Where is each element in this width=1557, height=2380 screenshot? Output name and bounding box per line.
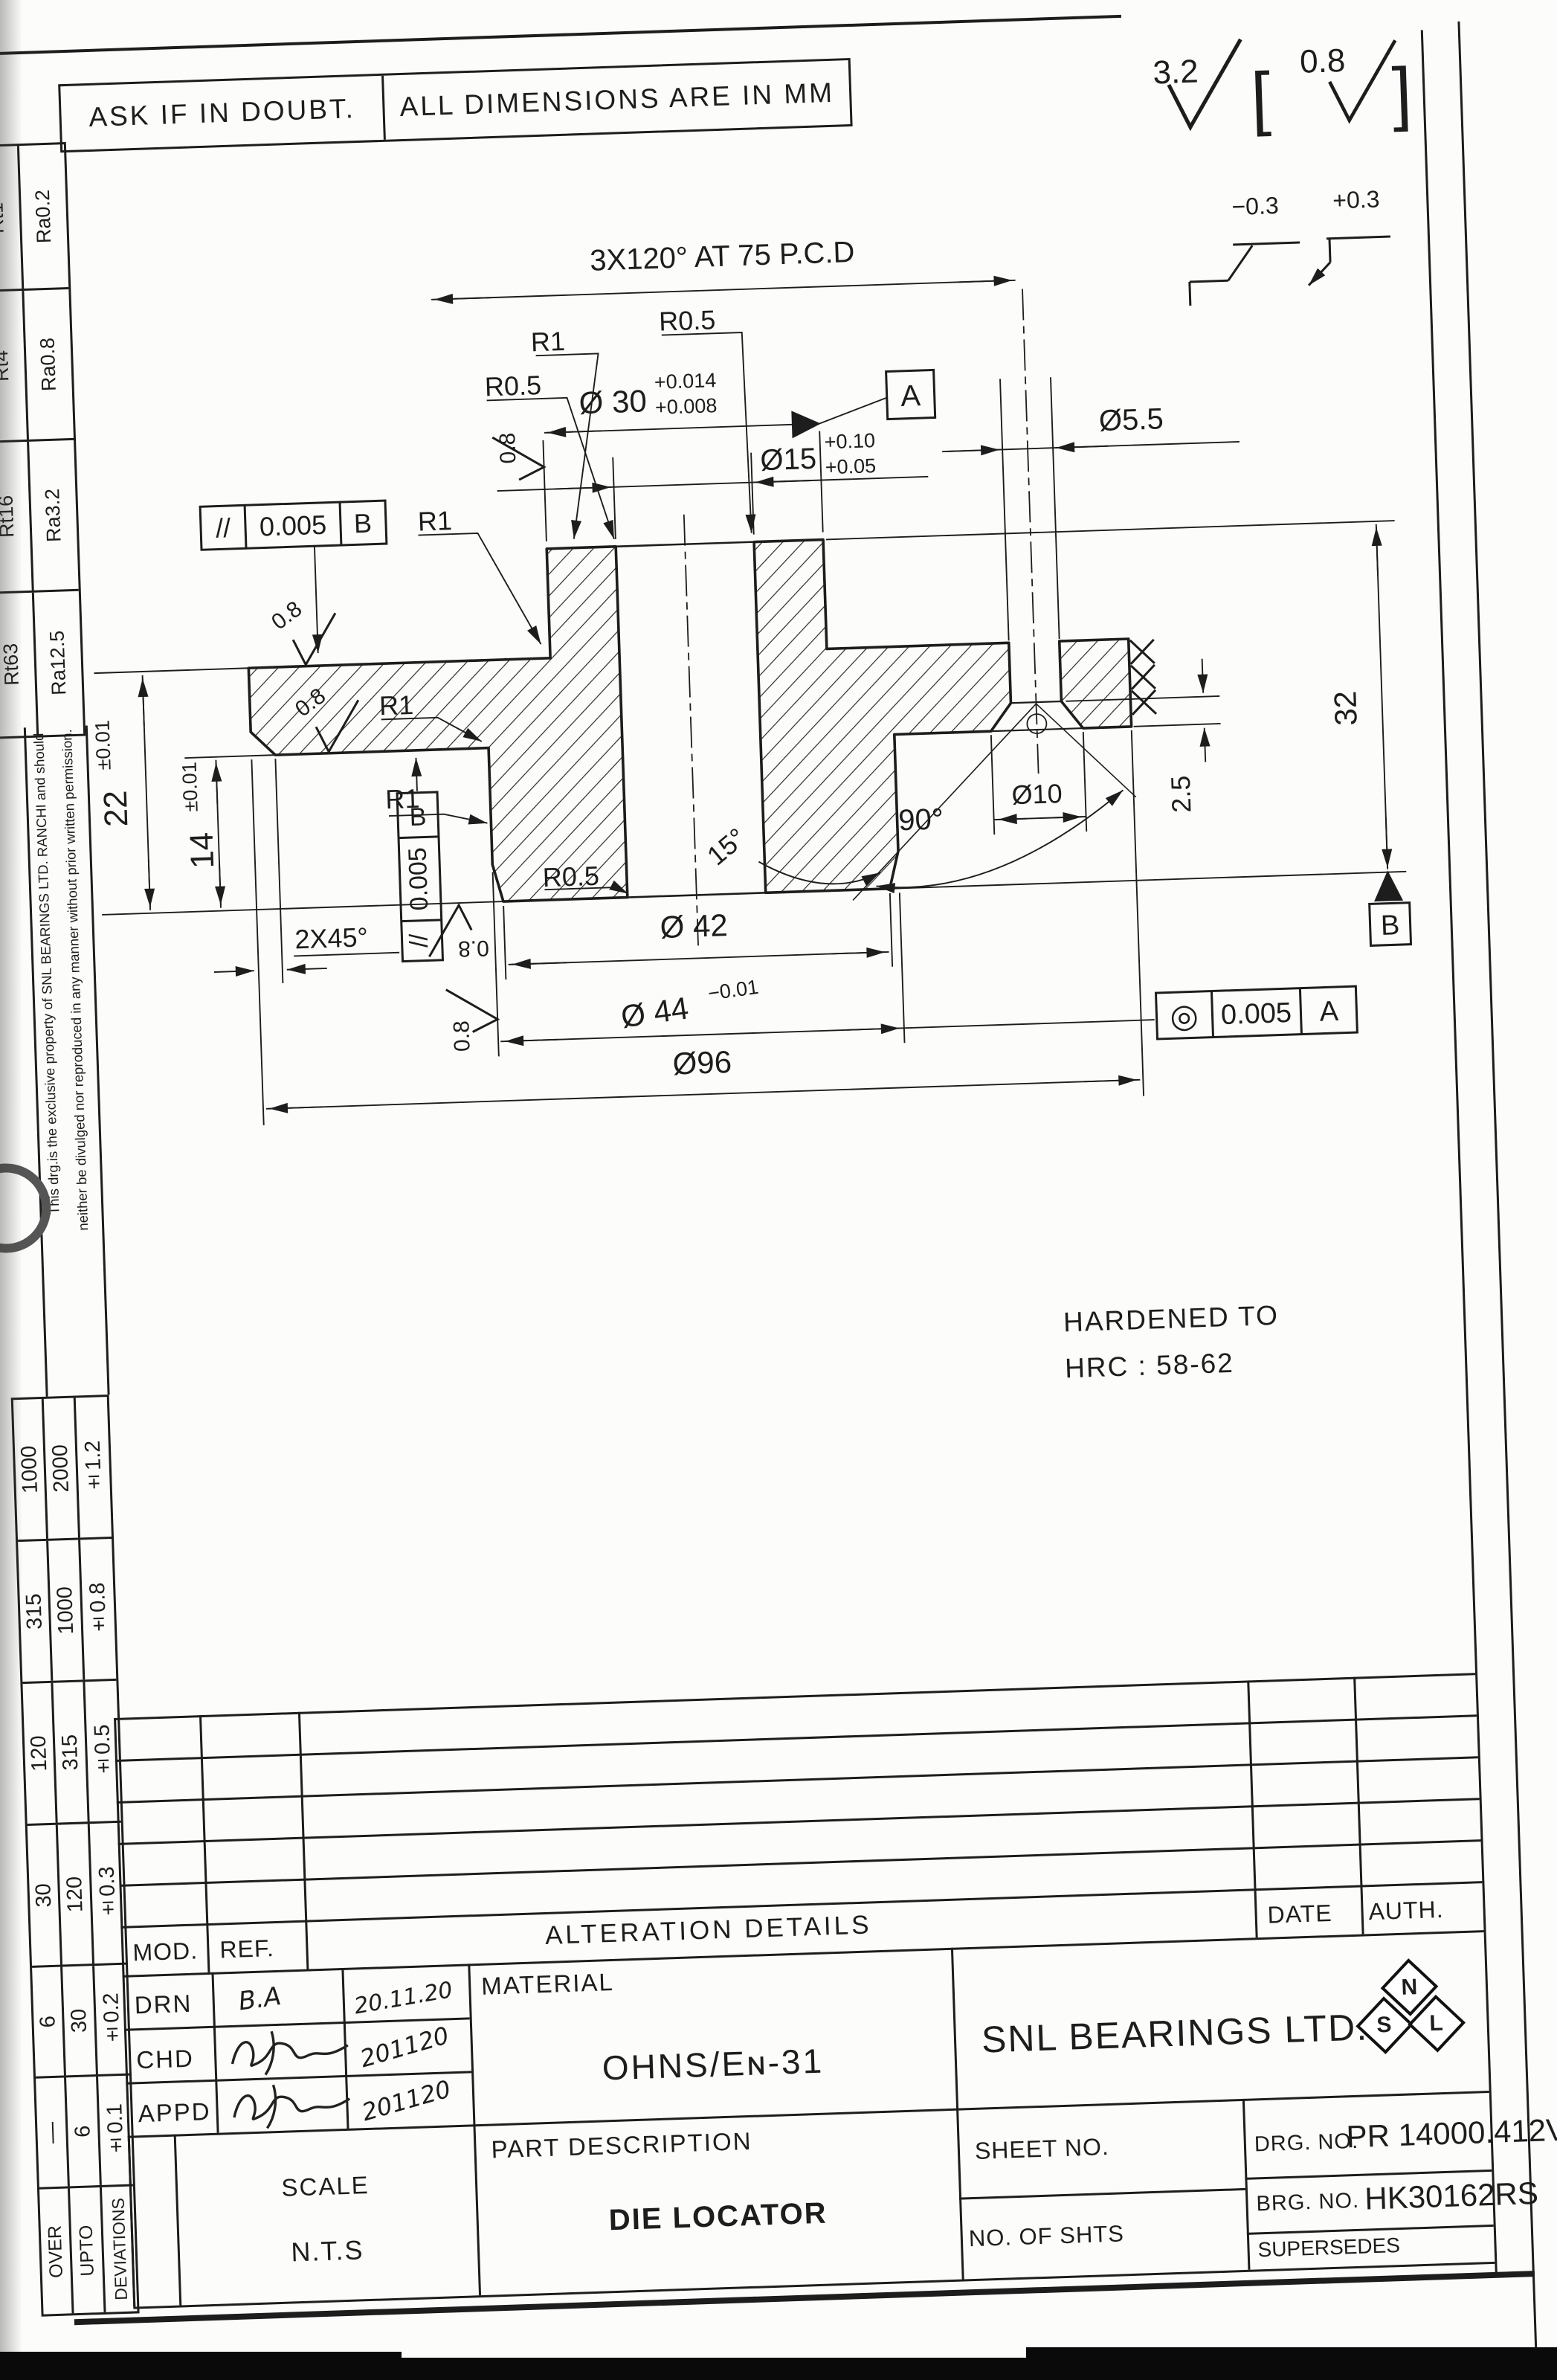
datum-a-label: A bbox=[900, 379, 921, 413]
alteration-details-header: ALTERATION DETAILS bbox=[544, 1910, 872, 1951]
tolerance-row: 120 315 ±0.5 bbox=[22, 1681, 120, 1826]
over-value: 120 bbox=[22, 1683, 57, 1824]
section-right-rim bbox=[1060, 639, 1132, 729]
scan-edge-shade bbox=[0, 0, 22, 2380]
fin-08-e: 0.8 bbox=[449, 1020, 474, 1052]
ref-header: REF. bbox=[219, 1934, 275, 1963]
dia5-5-dim: Ø5.5 bbox=[1098, 402, 1164, 437]
tolerance-row: 1000 2000 ±1.2 bbox=[13, 1397, 112, 1542]
tolerance-header-row: OVER UPTO DEVIATIONS bbox=[39, 2187, 138, 2315]
over-value: 315 bbox=[18, 1541, 53, 1682]
drn-date: 20.11.20 bbox=[352, 1977, 455, 2019]
drg-no-label: DRG. NO. bbox=[1254, 2129, 1358, 2158]
part-description-label: PART DESCRIPTION bbox=[491, 2127, 752, 2164]
upto-value: 2000 bbox=[44, 1398, 80, 1538]
supersedes-label: SUPERSEDES bbox=[1257, 2233, 1400, 2262]
fcf1-val: 0.005 bbox=[259, 509, 326, 542]
dia30-lower-tol: +0.008 bbox=[655, 394, 718, 419]
upto-header: UPTO bbox=[70, 2187, 106, 2313]
material-value: OHNS/Eɴ-31 bbox=[471, 2036, 955, 2093]
tol-plus: +0.3 bbox=[1332, 185, 1380, 213]
brg-no-label: BRG. NO. bbox=[1256, 2189, 1360, 2217]
scanned-drawing-page: ASK IF IN DOUBT. ALL DIMENSIONS ARE IN M… bbox=[0, 0, 1557, 2380]
section-right-half bbox=[754, 533, 1016, 892]
scale-value: N.T.S bbox=[177, 2231, 477, 2271]
fcf2-sym: // bbox=[404, 933, 433, 948]
dim2-5: 2.5 bbox=[1165, 775, 1197, 813]
fin-08-bracket: 0.8 bbox=[1299, 42, 1346, 80]
dim14-tol: ±0.01 bbox=[178, 762, 202, 812]
deviation-value: ±0.8 bbox=[80, 1539, 116, 1679]
brg-no-value: HK30162RS bbox=[1364, 2175, 1539, 2217]
chamfer-dim: 2X45° bbox=[294, 922, 369, 954]
drn-label: DRN bbox=[134, 1990, 193, 2020]
dia42-dim: Ø 42 bbox=[660, 907, 729, 945]
section-left-half bbox=[245, 547, 627, 910]
over-value: 30 bbox=[28, 1825, 62, 1966]
fin-08-d: 0.8 bbox=[458, 936, 490, 961]
dia15-lower-tol: +0.05 bbox=[825, 454, 876, 478]
dia10-dim: Ø10 bbox=[1011, 778, 1063, 810]
dia44-tol: −0.01 bbox=[706, 976, 760, 1005]
fin-08-c: 0.8 bbox=[495, 432, 520, 464]
over-value: 6 bbox=[32, 1966, 66, 2076]
fcf2-val: 0.005 bbox=[403, 847, 433, 911]
hardened-note-line1: HARDENED TO bbox=[1063, 1293, 1280, 1346]
fin-32-general: 3.2 bbox=[1153, 53, 1199, 91]
dia30-dim: Ø 30 bbox=[578, 383, 648, 420]
appd-label: APPD bbox=[138, 2097, 211, 2128]
dia44-dim: Ø 44 bbox=[619, 990, 691, 1034]
deviation-value: ±1.2 bbox=[76, 1397, 112, 1537]
company-name: SNL BEARINGS LTD. bbox=[981, 2005, 1369, 2061]
dia15-upper-tol: +0.10 bbox=[824, 429, 875, 453]
dim22: 22 bbox=[97, 790, 135, 828]
fcf2-datum: B bbox=[409, 803, 427, 832]
bracket-right: ] bbox=[1391, 54, 1413, 133]
angle15: 15° bbox=[701, 822, 752, 871]
bracket-left: [ bbox=[1250, 58, 1272, 138]
no-of-shts-label: NO. OF SHTS bbox=[968, 2220, 1124, 2252]
upto-value: 6 bbox=[66, 2077, 102, 2186]
datum-b-label: B bbox=[1380, 910, 1400, 942]
tolerance-row: — 6 ±0.1 bbox=[36, 2076, 133, 2190]
fcf1-sym: // bbox=[215, 512, 231, 544]
knurl-marks bbox=[1130, 640, 1156, 715]
upto-value: 315 bbox=[53, 1682, 89, 1822]
r1-step: R1 bbox=[378, 689, 413, 721]
r05-mid: R0.5 bbox=[484, 370, 541, 402]
appd-signature bbox=[228, 2077, 356, 2133]
auth-header: AUTH. bbox=[1368, 1896, 1444, 1926]
fcf1-datum: B bbox=[353, 508, 372, 539]
drawing-sheet: ASK IF IN DOUBT. ALL DIMENSIONS ARE IN M… bbox=[0, 0, 1557, 2380]
tolerance-row: 315 1000 ±0.8 bbox=[18, 1539, 116, 1684]
tol-minus: −0.3 bbox=[1231, 192, 1279, 220]
heat-treatment-note: HARDENED TO HRC : 58-62 bbox=[1063, 1293, 1281, 1392]
upto-value: 120 bbox=[58, 1824, 94, 1964]
dim14: 14 bbox=[184, 832, 222, 869]
tolerance-row: 30 120 ±0.3 bbox=[28, 1823, 126, 1968]
fcf3-val: 0.005 bbox=[1220, 997, 1292, 1031]
upto-value: 1000 bbox=[48, 1540, 85, 1680]
r05-top-right: R0.5 bbox=[659, 304, 716, 336]
drg-no-value: PR 14000.412V bbox=[1346, 2112, 1557, 2155]
r1-flange: R1 bbox=[417, 505, 452, 537]
fcf3-datum: A bbox=[1319, 996, 1339, 1028]
drn-name: B.A bbox=[236, 1981, 283, 2017]
dia30-upper-tol: +0.014 bbox=[654, 369, 716, 393]
dia15-dim: Ø15 bbox=[760, 443, 817, 477]
over-header: OVER bbox=[39, 2188, 74, 2314]
fcf3-sym: ◎ bbox=[1170, 997, 1199, 1035]
chd-label: CHD bbox=[136, 2045, 195, 2075]
date-header: DATE bbox=[1267, 1900, 1332, 1929]
chd-signature bbox=[227, 2023, 355, 2080]
material-label: MATERIAL bbox=[481, 1968, 615, 2001]
tolerance-row: 6 30 ±0.2 bbox=[32, 1965, 129, 2079]
fin-08-a: 0.8 bbox=[267, 596, 306, 634]
section-view-drawing: 3X120° AT 75 P.C.DØ 30+0.014+0.008AØ15+0… bbox=[0, 0, 1556, 1186]
scale-label: SCALE bbox=[175, 2167, 476, 2205]
mod-header: MOD. bbox=[132, 1937, 199, 1966]
chd-date: 201120 bbox=[357, 2021, 452, 2073]
appd-date: 201120 bbox=[358, 2074, 454, 2126]
part-description-value: DIE LOCATOR bbox=[476, 2193, 960, 2242]
dim22-tol: ±0.01 bbox=[91, 720, 115, 771]
r05-bottom: R0.5 bbox=[542, 861, 599, 892]
hardened-note-line2: HRC : 58-62 bbox=[1064, 1339, 1281, 1392]
pcd-note: 3X120° AT 75 P.C.D bbox=[590, 236, 855, 277]
angle90: 90° bbox=[898, 803, 944, 837]
over-value: — bbox=[36, 2077, 70, 2187]
dia96-dim: Ø96 bbox=[672, 1044, 732, 1081]
sheet-no-label: SHEET NO. bbox=[974, 2133, 1109, 2165]
sheet-bottom-border bbox=[74, 2271, 1535, 2325]
tolerance-step-symbols bbox=[1188, 237, 1393, 306]
r1-top: R1 bbox=[530, 326, 565, 358]
dim32: 32 bbox=[1327, 690, 1364, 726]
upto-value: 30 bbox=[62, 1966, 98, 2075]
